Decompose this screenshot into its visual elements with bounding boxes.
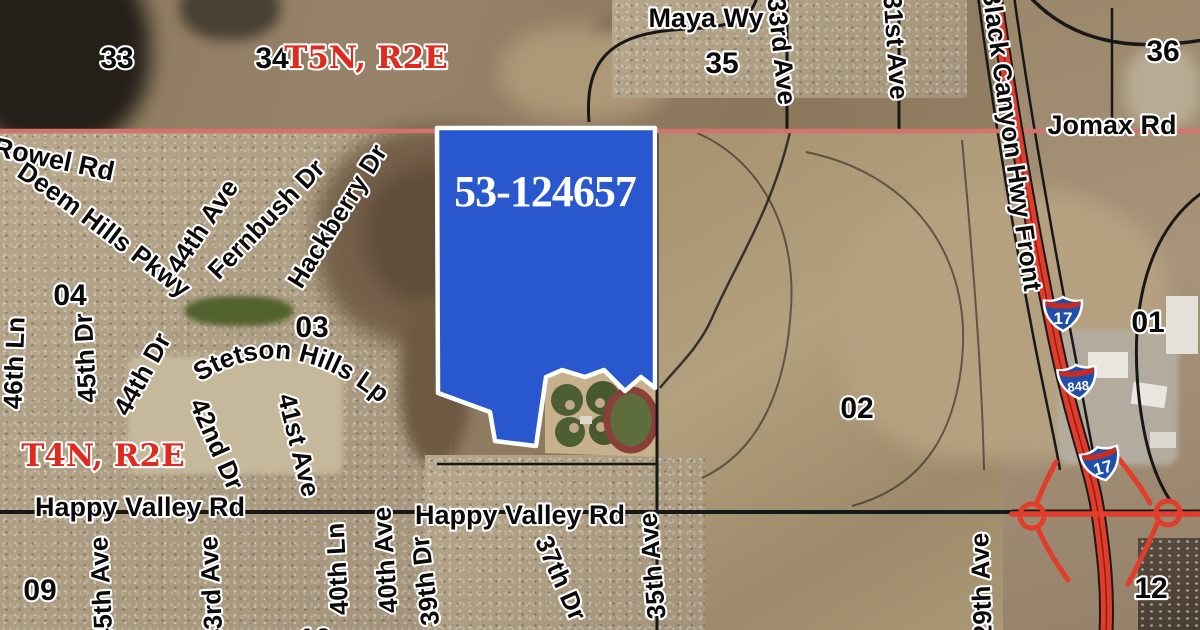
parcel-apn-label: 53-124657 <box>454 167 636 216</box>
ballfield-infield <box>569 423 579 433</box>
label-maya-wy: Maya Wy <box>648 3 763 33</box>
section-36: 36 <box>1146 35 1179 68</box>
road-jomax-connector <box>660 132 790 388</box>
section-35: 35 <box>705 47 738 80</box>
building <box>1150 432 1176 448</box>
label-45th-ave: 45th Ave <box>83 536 119 630</box>
section-12: 12 <box>1134 572 1167 605</box>
label-45th-dr: 45th Dr <box>68 312 103 403</box>
label-33rd-ave: 33rd Ave <box>761 0 802 106</box>
label-41st-ave: 41st Ave <box>272 390 327 499</box>
grading-outline <box>962 140 984 470</box>
label-39th-dr: 39th Dr <box>405 535 446 628</box>
township-t5n-r2e: T5N, R2E <box>284 40 448 76</box>
section-04: 04 <box>53 279 87 312</box>
map-overlay: 53-124657 33 34 35 36 04 03 02 01 09 10 … <box>0 0 1200 630</box>
label-happy-valley-rd-west: Happy Valley Rd <box>35 492 245 522</box>
label-hackberry-dr: Hackberry Dr <box>281 139 393 293</box>
shield-route-number: 848 <box>1067 378 1090 395</box>
label-jomax-rd: Jomax Rd <box>1047 110 1176 140</box>
ballfield-infield <box>595 398 605 408</box>
label-29th-ave: 29th Ave <box>964 532 998 630</box>
grading-outline <box>806 152 963 506</box>
ballfield <box>551 384 583 416</box>
township-t4n-r2e: T4N, R2E <box>21 438 185 474</box>
label-40th-ln: 40th Ln <box>320 522 355 616</box>
shield-route-number: 17 <box>1054 309 1073 328</box>
section-01: 01 <box>1131 306 1164 339</box>
label-35th-ave: 35th Ave <box>632 512 671 621</box>
label-40th-ave: 40th Ave <box>366 506 403 614</box>
grading-outline <box>697 133 792 478</box>
ramp <box>1036 462 1056 505</box>
school-building <box>580 416 592 424</box>
ramp <box>1118 458 1150 503</box>
label-happy-valley-rd-east: Happy Valley Rd <box>415 500 625 530</box>
label-43rd-ave: 43rd Ave <box>193 535 229 630</box>
label-44th-dr: 44th Dr <box>107 328 177 421</box>
label-37th-dr: 37th Dr <box>529 531 593 625</box>
building <box>1131 382 1168 409</box>
section-33: 33 <box>100 42 133 75</box>
label-31st-ave: 31st Ave <box>877 0 914 100</box>
section-09: 09 <box>23 574 56 607</box>
ballfield-infield <box>565 400 575 410</box>
building <box>1166 296 1198 354</box>
running-track <box>607 390 655 450</box>
label-46th-ln: 46th Ln <box>0 316 31 409</box>
label-42nd-dr: 42nd Dr <box>184 394 251 495</box>
ramp <box>1038 528 1068 580</box>
parcel-map[interactable]: 53-124657 33 34 35 36 04 03 02 01 09 10 … <box>0 0 1200 630</box>
section-10: 10 <box>298 623 331 630</box>
section-02: 02 <box>840 392 873 425</box>
